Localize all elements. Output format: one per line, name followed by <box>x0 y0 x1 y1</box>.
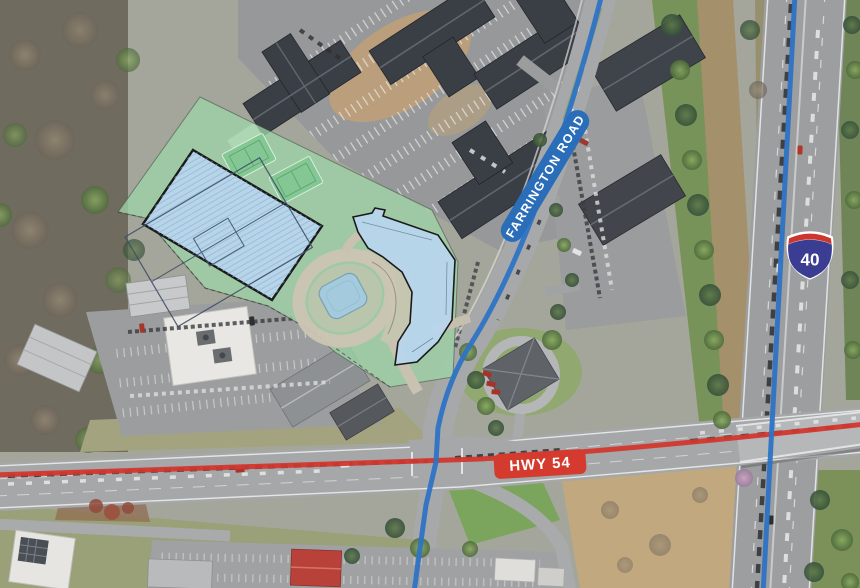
white-building-solar <box>9 530 76 588</box>
retail-building <box>148 559 213 588</box>
shield-number-text: 40 <box>800 250 819 269</box>
aerial-map: FARRINGTON ROAD HWY 54 40 <box>0 0 860 588</box>
white-office-building <box>164 306 257 385</box>
flowering-tree <box>735 469 753 487</box>
aerial-map-image: FARRINGTON ROAD HWY 54 40 <box>0 0 860 588</box>
red-roof-building <box>290 549 341 587</box>
